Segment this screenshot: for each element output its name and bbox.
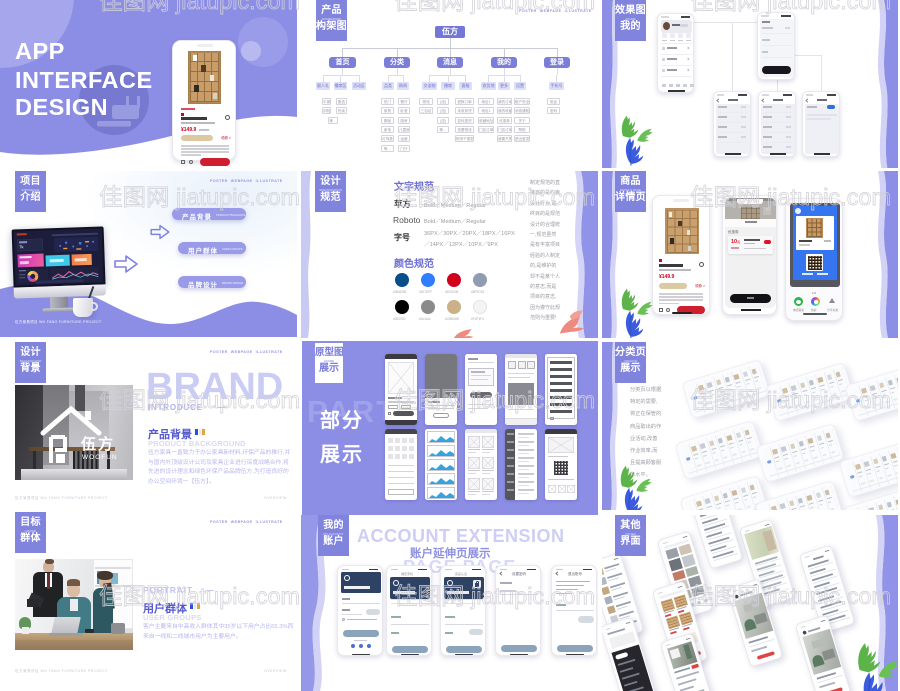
svg-text:伍方: 伍方 (80, 435, 115, 453)
svg-text:WOOFUN: WOOFUN (82, 454, 118, 461)
